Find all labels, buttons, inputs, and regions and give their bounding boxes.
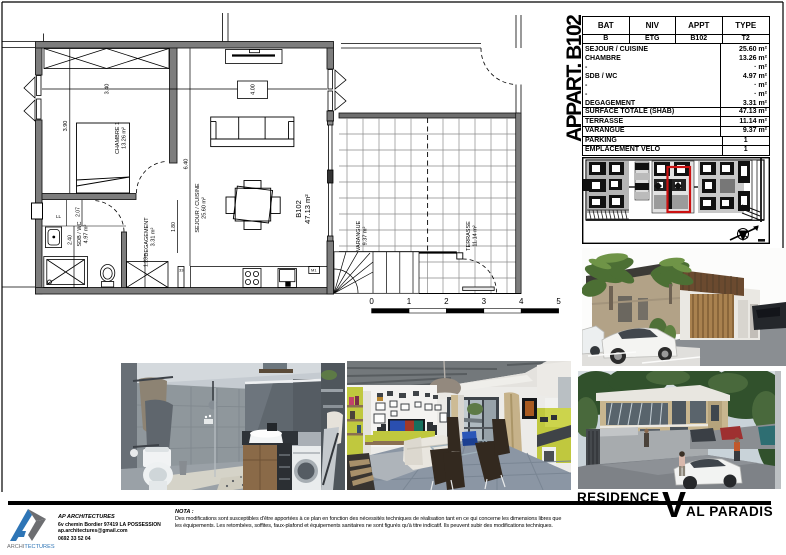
svg-text:11.14 m²: 11.14 m² (473, 225, 479, 246)
svg-text:6.40: 6.40 (184, 159, 190, 170)
svg-text:1.23: 1.23 (144, 257, 150, 267)
svg-text:B102: B102 (294, 200, 303, 218)
svg-text:SDB / WC: SDB / WC (77, 221, 83, 246)
svg-text:4.97 m²: 4.97 m² (84, 225, 90, 244)
svg-text:33: 33 (179, 268, 184, 273)
svg-text:3.40: 3.40 (105, 84, 111, 95)
svg-text:LL: LL (56, 214, 62, 219)
svg-text:13.26 m²: 13.26 m² (122, 127, 128, 149)
svg-text:3.31 m²: 3.31 m² (151, 228, 157, 247)
svg-text:SEJOUR / CUISINE: SEJOUR / CUISINE (195, 183, 201, 233)
svg-text:9.37 m²: 9.37 m² (363, 227, 369, 246)
svg-text:2: 2 (444, 297, 449, 306)
svg-text:3.90: 3.90 (63, 121, 69, 132)
svg-text:DEGAGEMENT: DEGAGEMENT (144, 217, 150, 257)
svg-text:4.00: 4.00 (251, 84, 257, 95)
svg-text:VARANGUE: VARANGUE (356, 220, 362, 251)
svg-text:CHAMBRE 1: CHAMBRE 1 (115, 122, 121, 154)
svg-text:25.60 m²: 25.60 m² (202, 197, 208, 219)
svg-text:2.07: 2.07 (76, 207, 82, 217)
svg-text:2.40: 2.40 (68, 235, 74, 245)
svg-text:1: 1 (407, 297, 412, 306)
svg-text:TERRASSE: TERRASSE (466, 221, 472, 251)
svg-text:5: 5 (556, 297, 561, 306)
svg-text:ARCHITECTURES: ARCHITECTURES (7, 544, 55, 550)
svg-text:M1: M1 (311, 268, 317, 273)
svg-text:47.13 m²: 47.13 m² (303, 194, 312, 224)
svg-text:3: 3 (482, 297, 487, 306)
svg-text:4: 4 (519, 297, 524, 306)
svg-text:0: 0 (369, 297, 374, 306)
svg-text:1.80: 1.80 (171, 222, 177, 232)
